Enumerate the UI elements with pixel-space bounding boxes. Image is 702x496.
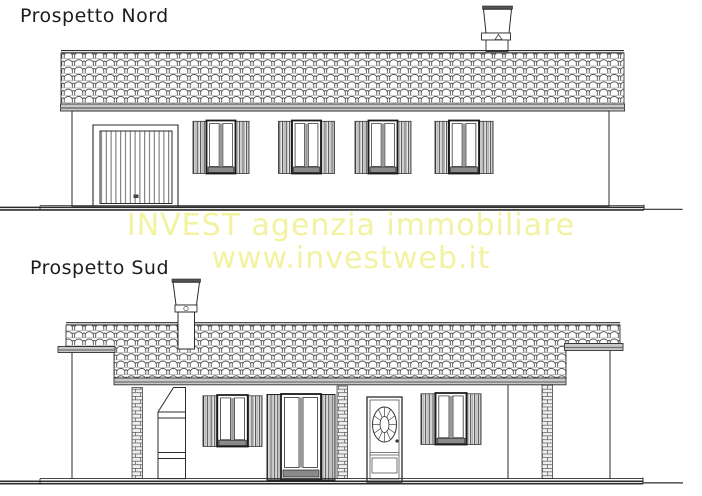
north-roof-fascia — [61, 104, 625, 111]
north-elevation-title: Prospetto Nord — [20, 5, 169, 27]
chimney-flue — [158, 388, 186, 479]
north-ground-line — [0, 205, 683, 210]
north-elevation — [0, 6, 683, 210]
brick-pillar-2 — [337, 386, 348, 479]
entrance-door — [367, 397, 402, 482]
north-window-1 — [193, 121, 249, 174]
south-roof — [66, 323, 620, 378]
brick-pillar-3 — [542, 385, 553, 479]
garage-door — [93, 125, 178, 206]
garage-handle — [134, 195, 139, 199]
north-window-4 — [435, 121, 493, 174]
south-elevation-title: Prospetto Sud — [30, 257, 169, 279]
drawing-sheet: INVEST agenzia immobiliare www.investweb… — [0, 0, 702, 496]
north-chimney — [482, 6, 513, 52]
south-window-2 — [421, 393, 481, 445]
south-window-1 — [203, 395, 262, 447]
south-elevation — [0, 279, 683, 484]
brick-pillar-1 — [132, 388, 143, 479]
north-window-2 — [279, 121, 335, 174]
north-roof — [61, 51, 624, 104]
south-ground-line — [0, 478, 683, 484]
french-door — [267, 394, 335, 480]
north-window-3 — [355, 121, 411, 174]
elevation-drawing — [0, 0, 702, 496]
